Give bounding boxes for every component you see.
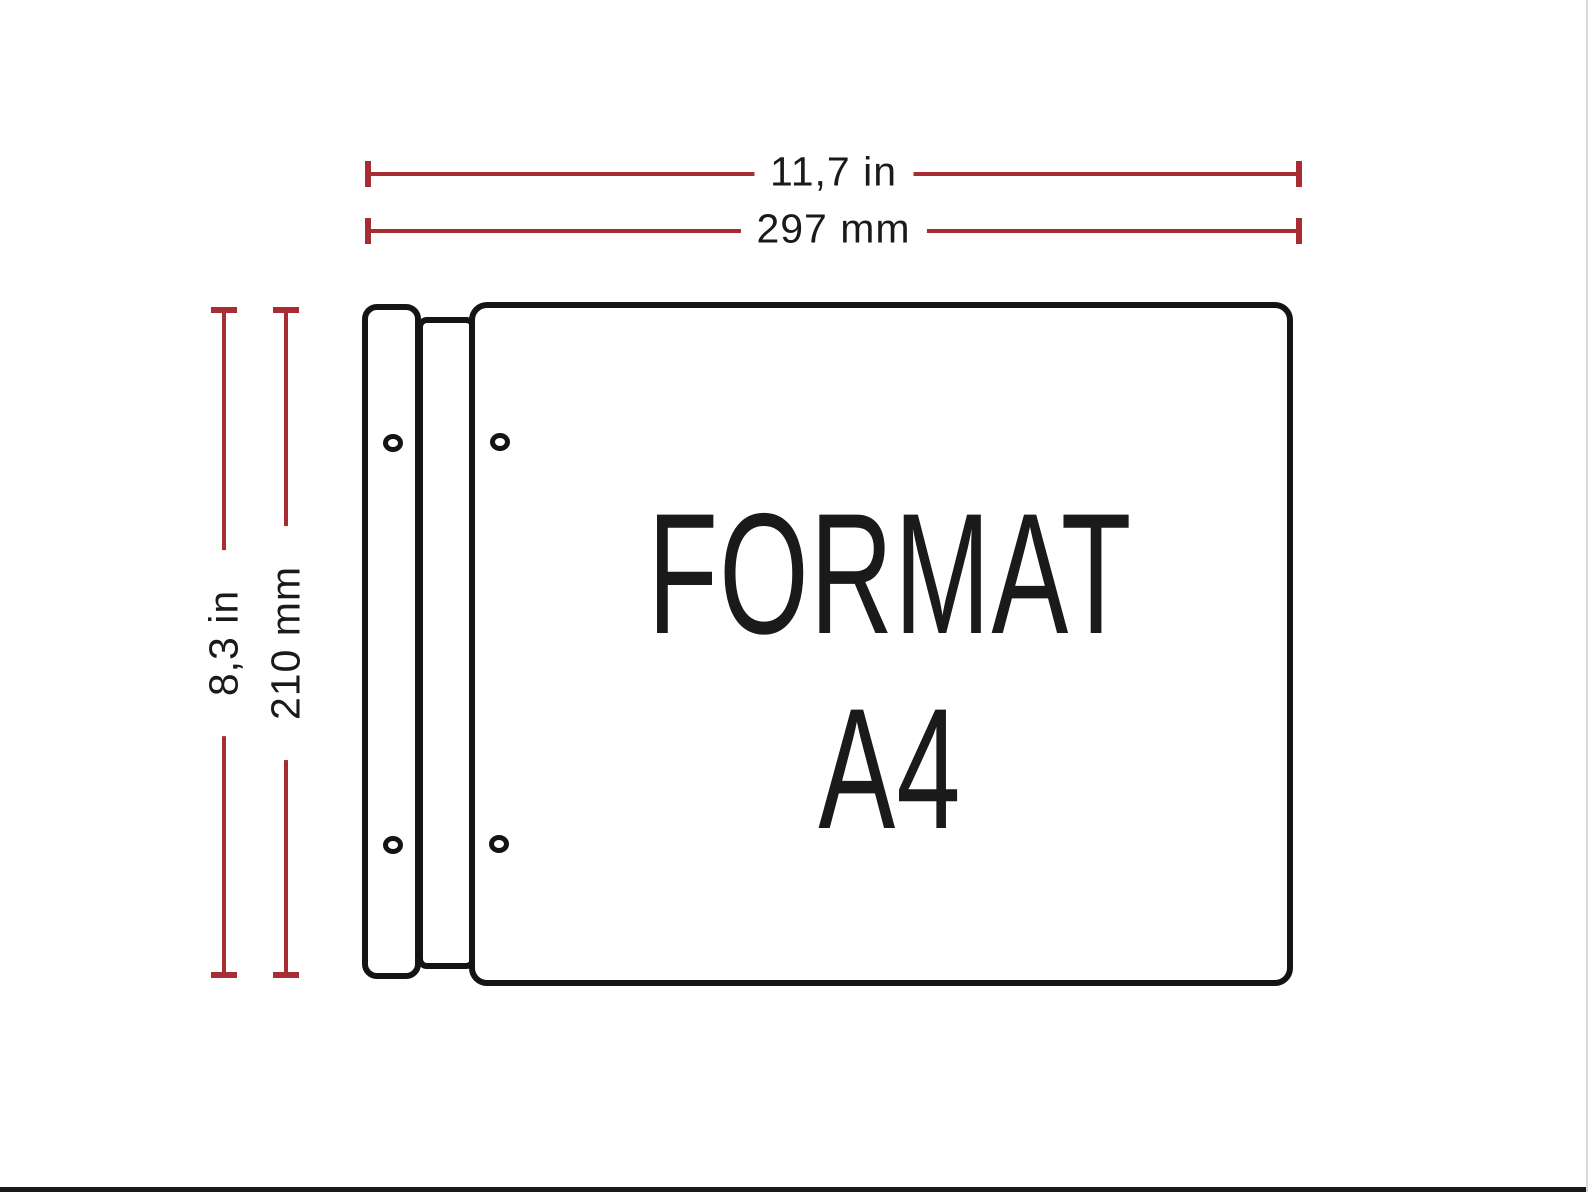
album-spine	[362, 304, 421, 979]
dimension-cap-top	[273, 307, 299, 313]
album-binding-strip	[417, 317, 476, 969]
format-a4-diagram: 11,7 in 297 mm 8,3 in 210 mm FORMAT A4	[0, 0, 1588, 1192]
dimension-cap-left	[365, 161, 371, 187]
binding-hole-page-top	[490, 433, 510, 451]
dimension-width-inches: 11,7 in	[365, 161, 1302, 187]
dimension-label-width-inches: 11,7 in	[754, 149, 913, 196]
dimension-width-millimeters: 297 mm	[365, 218, 1302, 244]
sheet-format-code: A4	[614, 683, 1166, 855]
sheet-format-title: FORMAT	[614, 488, 1166, 660]
binding-hole-page-bottom	[489, 835, 509, 853]
dimension-label-height-inches: 8,3 in	[201, 549, 248, 735]
dimension-height-millimeters: 210 mm	[273, 307, 299, 978]
binding-hole-spine-top	[383, 434, 403, 452]
dimension-cap-left	[365, 218, 371, 244]
dimension-cap-right	[1296, 161, 1302, 187]
dimension-cap-top	[211, 307, 237, 313]
bottom-frame-line	[0, 1187, 1588, 1192]
dimension-label-height-millimeters: 210 mm	[263, 525, 310, 759]
binding-hole-spine-bottom	[383, 836, 403, 854]
dimension-cap-bottom	[211, 972, 237, 978]
dimension-label-width-millimeters: 297 mm	[740, 206, 926, 253]
dimension-cap-right	[1296, 218, 1302, 244]
dimension-height-inches: 8,3 in	[211, 307, 237, 978]
dimension-cap-bottom	[273, 972, 299, 978]
